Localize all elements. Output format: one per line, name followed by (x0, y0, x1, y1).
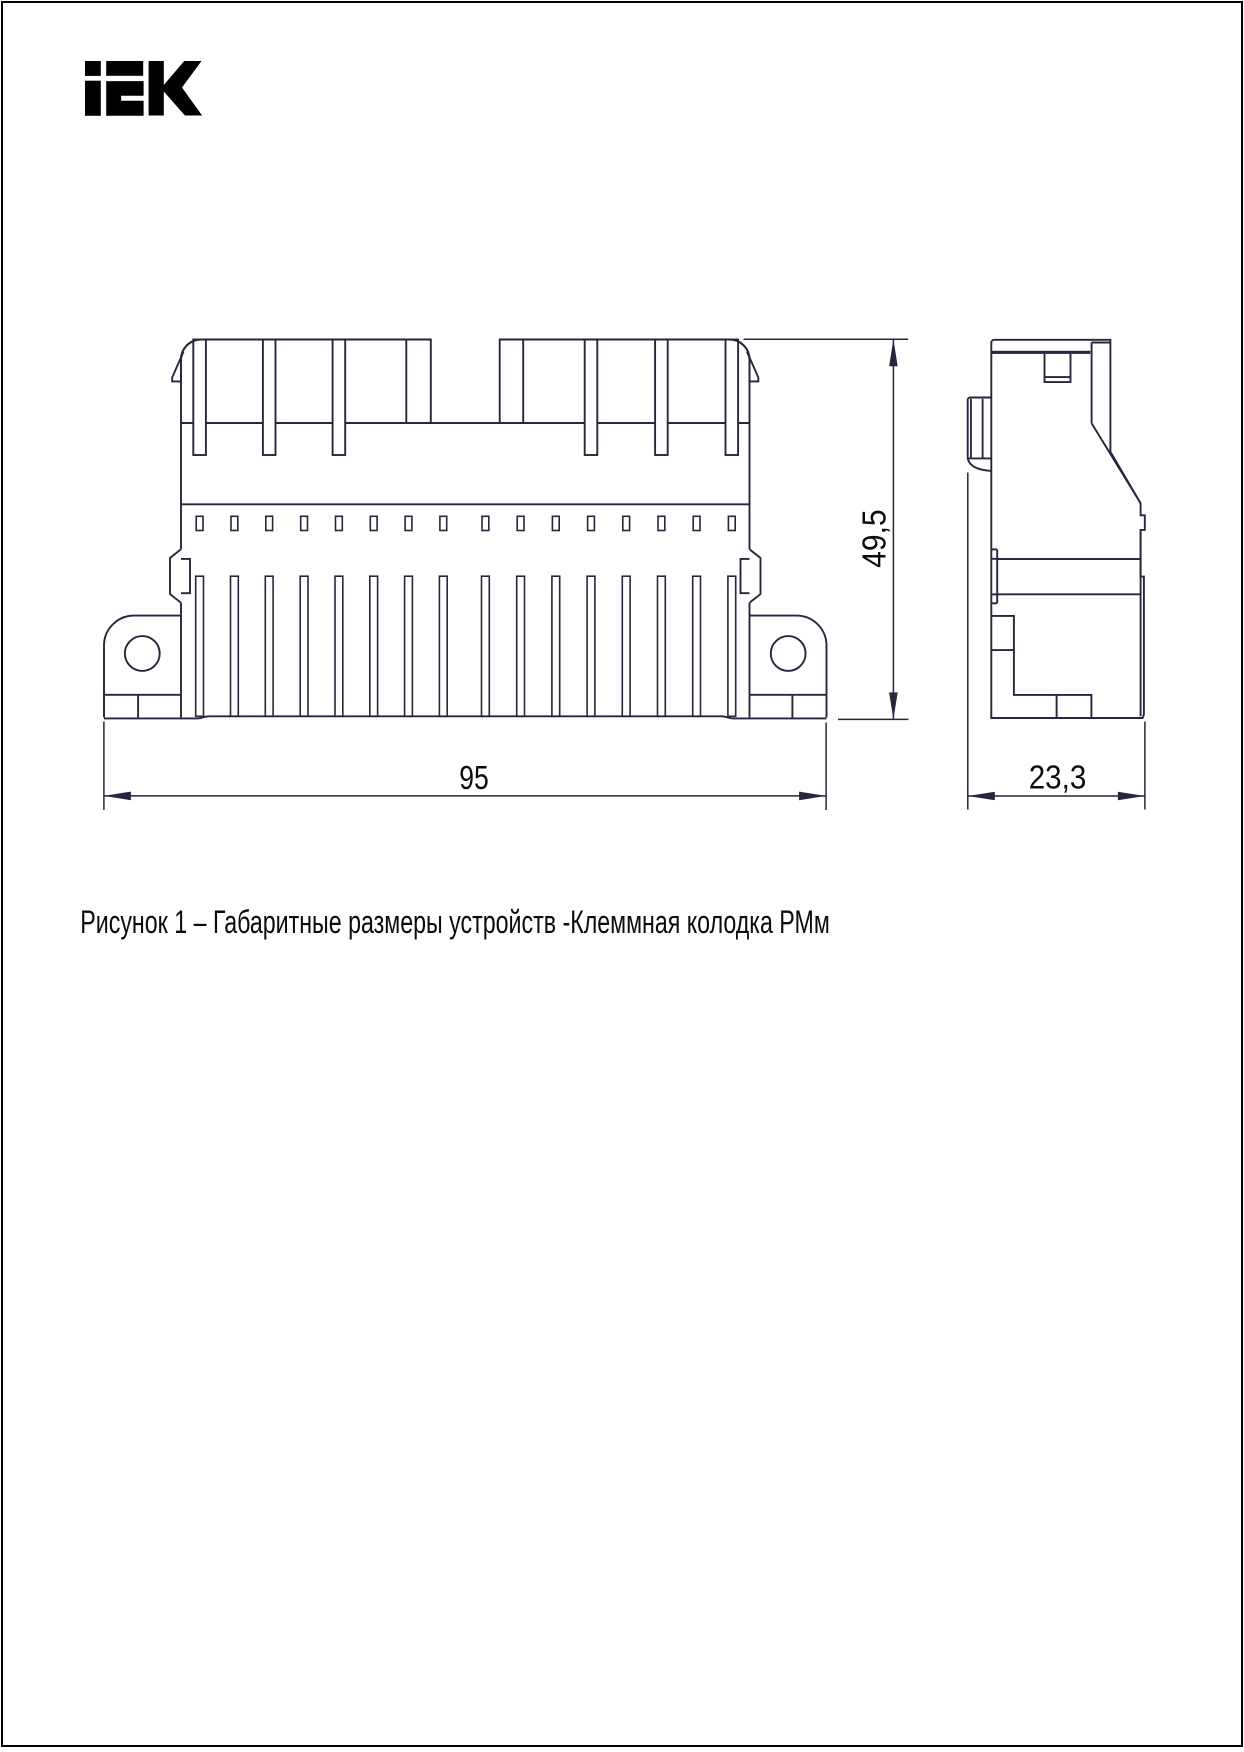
svg-text:49,5: 49,5 (855, 509, 892, 568)
svg-text:23,3: 23,3 (1029, 758, 1087, 795)
svg-text:Рисунок 1 – Габаритные размеры: Рисунок 1 – Габаритные размеры устройств… (80, 904, 830, 940)
svg-text:95: 95 (459, 759, 489, 796)
